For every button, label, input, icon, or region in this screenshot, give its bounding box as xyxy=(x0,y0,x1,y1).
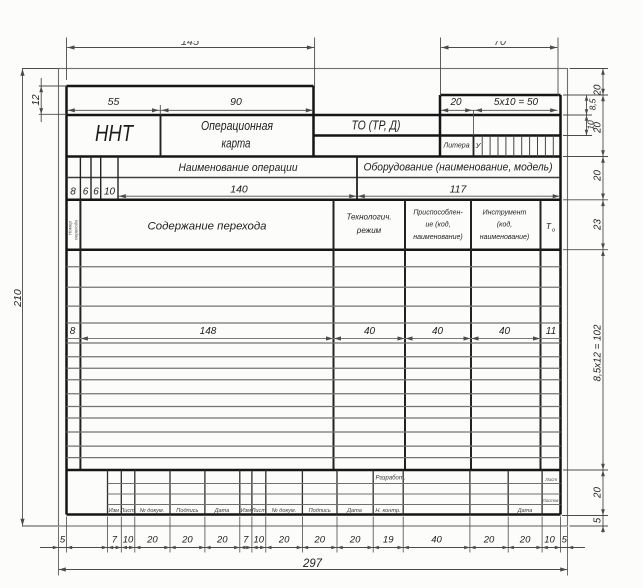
svg-text:6: 6 xyxy=(93,187,99,198)
svg-text:Листов: Листов xyxy=(542,498,559,503)
svg-text:20: 20 xyxy=(349,535,361,546)
svg-text:20: 20 xyxy=(181,535,193,546)
svg-text:Лист: Лист xyxy=(251,508,267,514)
svg-text:5: 5 xyxy=(592,517,603,523)
svg-text:6: 6 xyxy=(83,187,89,198)
svg-text:Наименование операции: Наименование операции xyxy=(179,162,298,174)
svg-text:Оборудование (наименование, мо: Оборудование (наименование, модель) xyxy=(364,162,553,174)
svg-text:20: 20 xyxy=(313,535,325,546)
svg-text:11: 11 xyxy=(546,326,556,337)
svg-text:20: 20 xyxy=(592,170,603,182)
svg-text:Операционная: Операционная xyxy=(201,119,273,133)
svg-text:20: 20 xyxy=(146,535,158,546)
svg-text:210: 210 xyxy=(12,289,24,308)
svg-text:(код,: (код, xyxy=(497,221,512,229)
svg-text:Дата: Дата xyxy=(214,508,230,514)
svg-text:8,5: 8,5 xyxy=(588,98,598,110)
svg-text:40: 40 xyxy=(431,535,442,546)
svg-text:Номер: Номер xyxy=(68,220,73,235)
svg-text:ие (код,: ие (код, xyxy=(425,221,450,229)
svg-text:№ докум.: № докум. xyxy=(140,508,165,514)
svg-text:Дата: Дата xyxy=(346,508,362,514)
svg-text:5х10 = 50: 5х10 = 50 xyxy=(494,97,539,108)
svg-text:Подпись: Подпись xyxy=(309,508,331,514)
svg-text:Содержание перехода: Содержание перехода xyxy=(148,221,267,233)
svg-text:7: 7 xyxy=(112,535,118,546)
svg-text:8: 8 xyxy=(70,326,76,337)
svg-text:23: 23 xyxy=(592,219,603,231)
svg-text:90: 90 xyxy=(230,96,242,108)
svg-text:20: 20 xyxy=(216,535,228,546)
svg-text:наименование): наименование) xyxy=(480,234,529,241)
svg-text:5: 5 xyxy=(562,535,568,546)
svg-text:Лист: Лист xyxy=(544,477,557,482)
svg-text:40: 40 xyxy=(364,326,376,337)
svg-text:Технологич.: Технологич. xyxy=(346,213,391,222)
svg-text:10: 10 xyxy=(123,535,134,546)
svg-text:8,5х12 = 102: 8,5х12 = 102 xyxy=(592,324,603,381)
svg-text:40: 40 xyxy=(432,326,444,337)
svg-text:20: 20 xyxy=(449,97,462,108)
svg-text:Изм: Изм xyxy=(241,508,252,514)
svg-text:о: о xyxy=(552,228,555,234)
svg-text:№ докум.: № докум. xyxy=(272,508,297,514)
svg-text:297: 297 xyxy=(302,556,323,570)
svg-text:20: 20 xyxy=(483,535,495,546)
svg-text:Дата: Дата xyxy=(517,508,533,514)
svg-text:20: 20 xyxy=(592,84,603,96)
svg-text:режим: режим xyxy=(356,226,382,235)
svg-text:карта: карта xyxy=(222,137,251,151)
svg-text:Литера: Литера xyxy=(442,143,469,150)
svg-text:20: 20 xyxy=(519,535,531,546)
svg-text:ТО (ТР, Д): ТО (ТР, Д) xyxy=(352,119,401,133)
svg-text:20: 20 xyxy=(592,487,603,499)
svg-text:Инструмент: Инструмент xyxy=(483,210,527,217)
svg-text:55: 55 xyxy=(108,96,120,108)
svg-text:40: 40 xyxy=(499,326,511,337)
svg-text:8: 8 xyxy=(70,187,76,198)
svg-text:Лист: Лист xyxy=(119,508,135,514)
svg-text:наименование): наименование) xyxy=(413,234,462,241)
svg-text:148: 148 xyxy=(200,326,217,337)
svg-text:Приспособлен-: Приспособлен- xyxy=(413,209,463,217)
svg-text:ННТ: ННТ xyxy=(95,120,134,146)
svg-text:Разработ.: Разработ. xyxy=(376,476,406,482)
svg-text:20: 20 xyxy=(278,535,290,546)
svg-text:10: 10 xyxy=(544,535,555,546)
svg-text:перехода: перехода xyxy=(74,220,79,240)
svg-text:12: 12 xyxy=(31,94,42,106)
svg-text:7: 7 xyxy=(243,535,249,546)
svg-text:10: 10 xyxy=(254,535,265,546)
svg-text:Н. контр.: Н. контр. xyxy=(375,508,400,514)
svg-text:10: 10 xyxy=(586,120,596,130)
svg-text:5: 5 xyxy=(60,535,66,546)
svg-text:10: 10 xyxy=(104,187,116,198)
svg-text:140: 140 xyxy=(230,184,248,196)
svg-text:Подпись: Подпись xyxy=(176,508,198,514)
svg-text:19: 19 xyxy=(383,535,394,546)
svg-text:Изм: Изм xyxy=(109,508,120,514)
svg-text:117: 117 xyxy=(450,184,468,196)
